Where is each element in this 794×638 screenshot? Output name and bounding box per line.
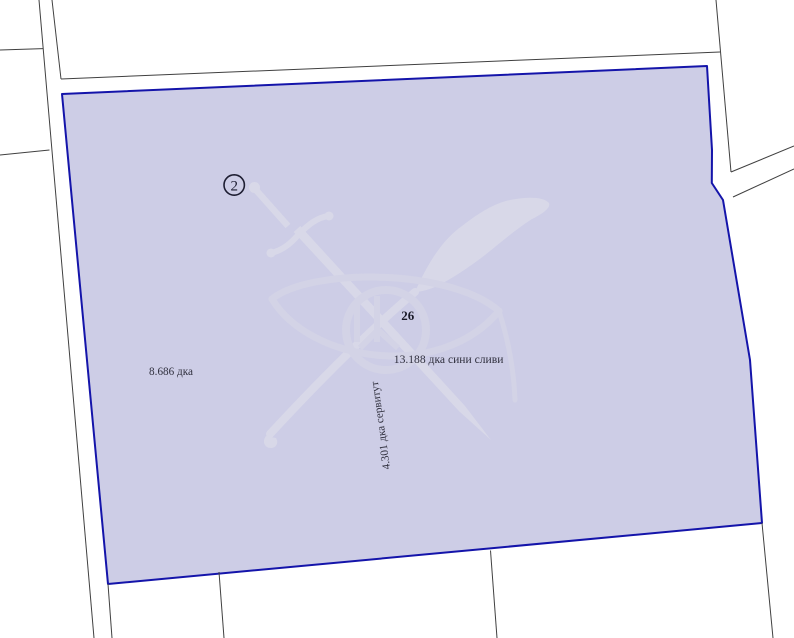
svg-text:8.686 дка: 8.686 дка xyxy=(149,366,193,378)
svg-text:13.188 дка сини сливи: 13.188 дка сини сливи xyxy=(394,353,504,366)
svg-text:26: 26 xyxy=(401,308,415,323)
svg-text:2: 2 xyxy=(230,179,238,195)
